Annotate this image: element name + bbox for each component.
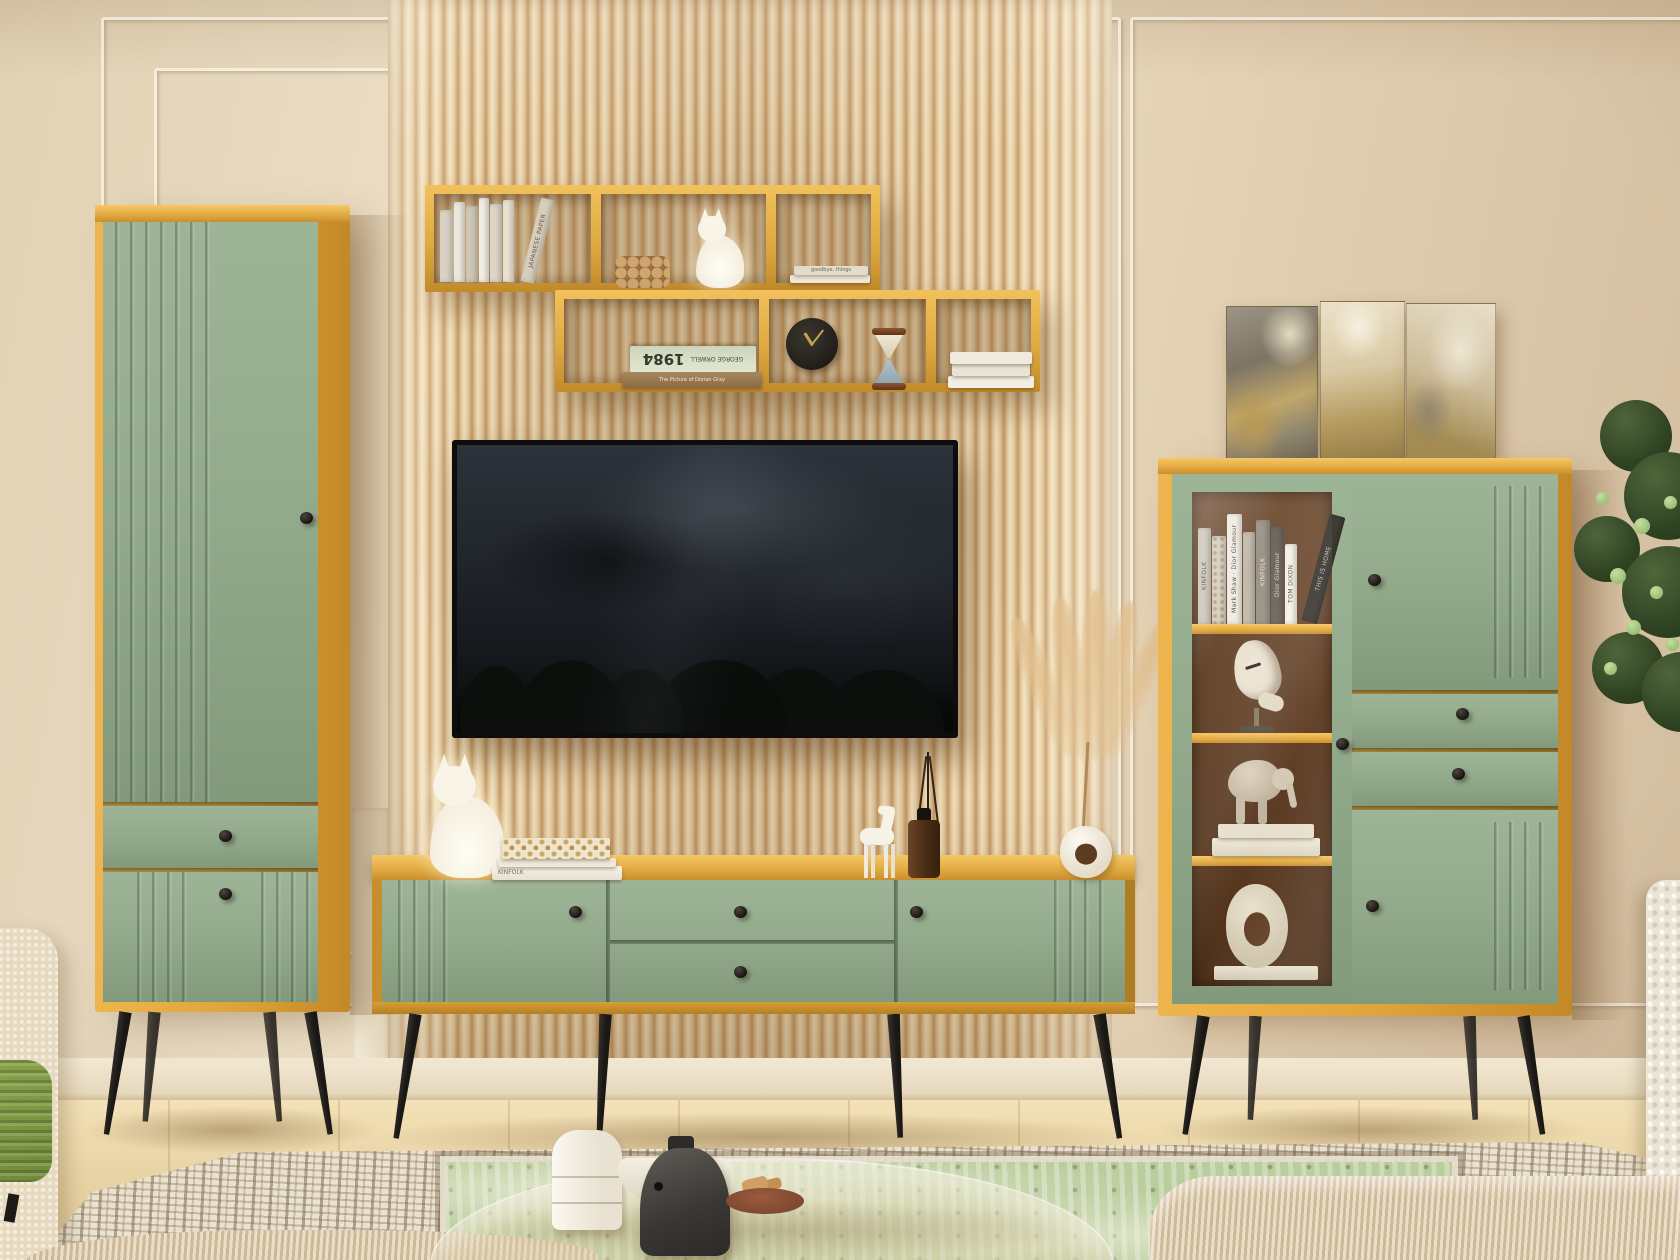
glass-book: Dior Glamour (1271, 526, 1284, 624)
left-cabinet-drawer-knob (219, 888, 232, 900)
left-cabinet-drawer-top (103, 806, 318, 868)
glass-book: KINFOLK (1198, 528, 1211, 624)
book-title: KINFOLK (1198, 528, 1211, 624)
horse-leg (884, 844, 888, 878)
door-fluting (1054, 880, 1112, 1002)
cat-head (698, 216, 726, 242)
tv-stand-door-knob (910, 906, 923, 918)
book-spine (466, 206, 478, 282)
white-book (948, 376, 1034, 388)
glass-book (1212, 536, 1226, 624)
highboard-door-knob (1366, 900, 1379, 912)
horse-leg (864, 844, 868, 878)
tv-stand-drawer-knob (734, 966, 747, 978)
berry (1626, 620, 1641, 635)
ottoman-bottom-right (1150, 1176, 1680, 1260)
glass-door-knob (1336, 738, 1349, 750)
book-title: Mark Shaw · Dior Glamour (1227, 514, 1242, 624)
art-panel-right (1406, 303, 1496, 460)
drawer-fluting (137, 872, 193, 1002)
book-spine (440, 210, 453, 282)
door-fluting (398, 880, 456, 1002)
berry (1610, 568, 1626, 584)
berry (1664, 496, 1677, 509)
glass-book (1243, 532, 1255, 624)
stand-seam (894, 880, 898, 1002)
clock-minute-hand (810, 329, 824, 346)
drawer-fluting (261, 872, 313, 1002)
flat-book: goodbye, things (794, 266, 868, 275)
flat-book (790, 275, 870, 283)
highboard-drawer (1352, 694, 1558, 748)
sculpture-eye (1245, 662, 1261, 670)
white-book (952, 364, 1030, 376)
horse-figurine (854, 806, 902, 878)
elephant-leg (1236, 796, 1245, 824)
glass-shelf (1192, 856, 1332, 866)
book-title: TOM DIXON (1285, 544, 1297, 624)
highboard-bottom-door (1352, 810, 1558, 1004)
art-panel-left (1226, 306, 1318, 460)
door-fluting (1494, 822, 1548, 990)
cabinet-top-edge (1158, 458, 1572, 474)
berry (1604, 662, 1617, 675)
glass-shelf (1192, 624, 1332, 634)
drawer-seam (610, 940, 894, 944)
cat-body (696, 235, 744, 288)
floor-shadow-left-cabinet (80, 1106, 380, 1154)
book-title: Dior Glamour (1271, 526, 1284, 624)
hourglass-cap (872, 383, 906, 390)
highboard-door-knob (1368, 574, 1381, 586)
cup-stack (552, 1130, 622, 1230)
berry (1650, 586, 1663, 599)
berry (1634, 518, 1650, 534)
cat-lamp-shelf (696, 216, 744, 288)
highboard-drawer-knob (1456, 708, 1469, 720)
tv-stand-bottom-rail (372, 1002, 1135, 1014)
sculpture-stem (1254, 708, 1259, 728)
door-fluting (115, 222, 212, 802)
tv-frame (452, 440, 958, 738)
book-spine (490, 204, 502, 282)
horse-leg (871, 844, 875, 878)
hourglass-sand-bottom (875, 360, 903, 383)
display-books (1218, 824, 1314, 838)
baseboard (0, 1058, 1680, 1104)
pampas-ring-vase (1060, 826, 1112, 878)
diffuser-bottle (908, 820, 940, 878)
tv-stand-body (372, 880, 1135, 1014)
book-spine (454, 202, 465, 282)
tv-stand-book (498, 858, 616, 867)
book-dorian-gray: The Picture of Dorian Gray (622, 372, 762, 388)
book-title: KINFOLK (1256, 520, 1270, 624)
glass-book: KINFOLK (1256, 520, 1270, 624)
book-spine (479, 198, 489, 282)
glass-book: Mark Shaw · Dior Glamour (1227, 514, 1242, 624)
book-1984: GEORGE ORWELL 1984 (630, 346, 756, 372)
tv-reflection (457, 445, 953, 733)
tv-stand-front (382, 880, 1125, 1002)
horse-leg (891, 844, 895, 878)
wall-clock (786, 318, 838, 370)
tv-screen (457, 445, 953, 733)
highboard-top-door (1352, 474, 1558, 690)
potted-plant (1538, 400, 1680, 750)
display-books (1212, 838, 1320, 856)
left-cabinet-drawer-knob (219, 830, 232, 842)
donut-vase (1226, 884, 1288, 968)
living-room-scene: JAPANESE PAPER goodbye, things The Pictu… (0, 0, 1680, 1260)
art-panel-middle (1320, 301, 1405, 460)
left-cabinet-door-knob (300, 512, 313, 524)
snack-plate (726, 1188, 804, 1214)
horse-head (878, 805, 896, 816)
cat-head (433, 766, 476, 806)
tv-stand-door-knob (569, 906, 582, 918)
book-spine (503, 200, 514, 282)
glass-shelf (1192, 733, 1332, 743)
wooden-bead-cluster (615, 256, 670, 288)
tv-stand-book: KINFOLK (492, 866, 622, 880)
display-book (1214, 966, 1318, 980)
berry (1666, 638, 1679, 651)
white-book (950, 352, 1032, 364)
tv-stand-drawer-knob (734, 906, 747, 918)
left-cabinet-drawer-bottom (103, 872, 318, 1002)
patterned-box (502, 838, 610, 859)
book-title: 1984 (643, 350, 685, 368)
highboard-drawer-knob (1452, 768, 1465, 780)
elephant-leg (1258, 798, 1267, 824)
hourglass (872, 328, 906, 390)
armchair-green-cushion (0, 1060, 52, 1182)
sculpture-base (1240, 726, 1274, 732)
left-cabinet-door (103, 222, 318, 802)
hourglass-sand-top (875, 335, 903, 358)
cat-lamp-large (430, 766, 504, 878)
cabinet-top-edge (95, 205, 350, 222)
book-author: GEORGE ORWELL (691, 356, 744, 363)
berry (1596, 492, 1609, 505)
teapot (640, 1148, 730, 1256)
teapot-spout (654, 1182, 663, 1191)
hourglass-cap (872, 328, 906, 335)
glass-book: TOM DIXON (1285, 544, 1297, 624)
